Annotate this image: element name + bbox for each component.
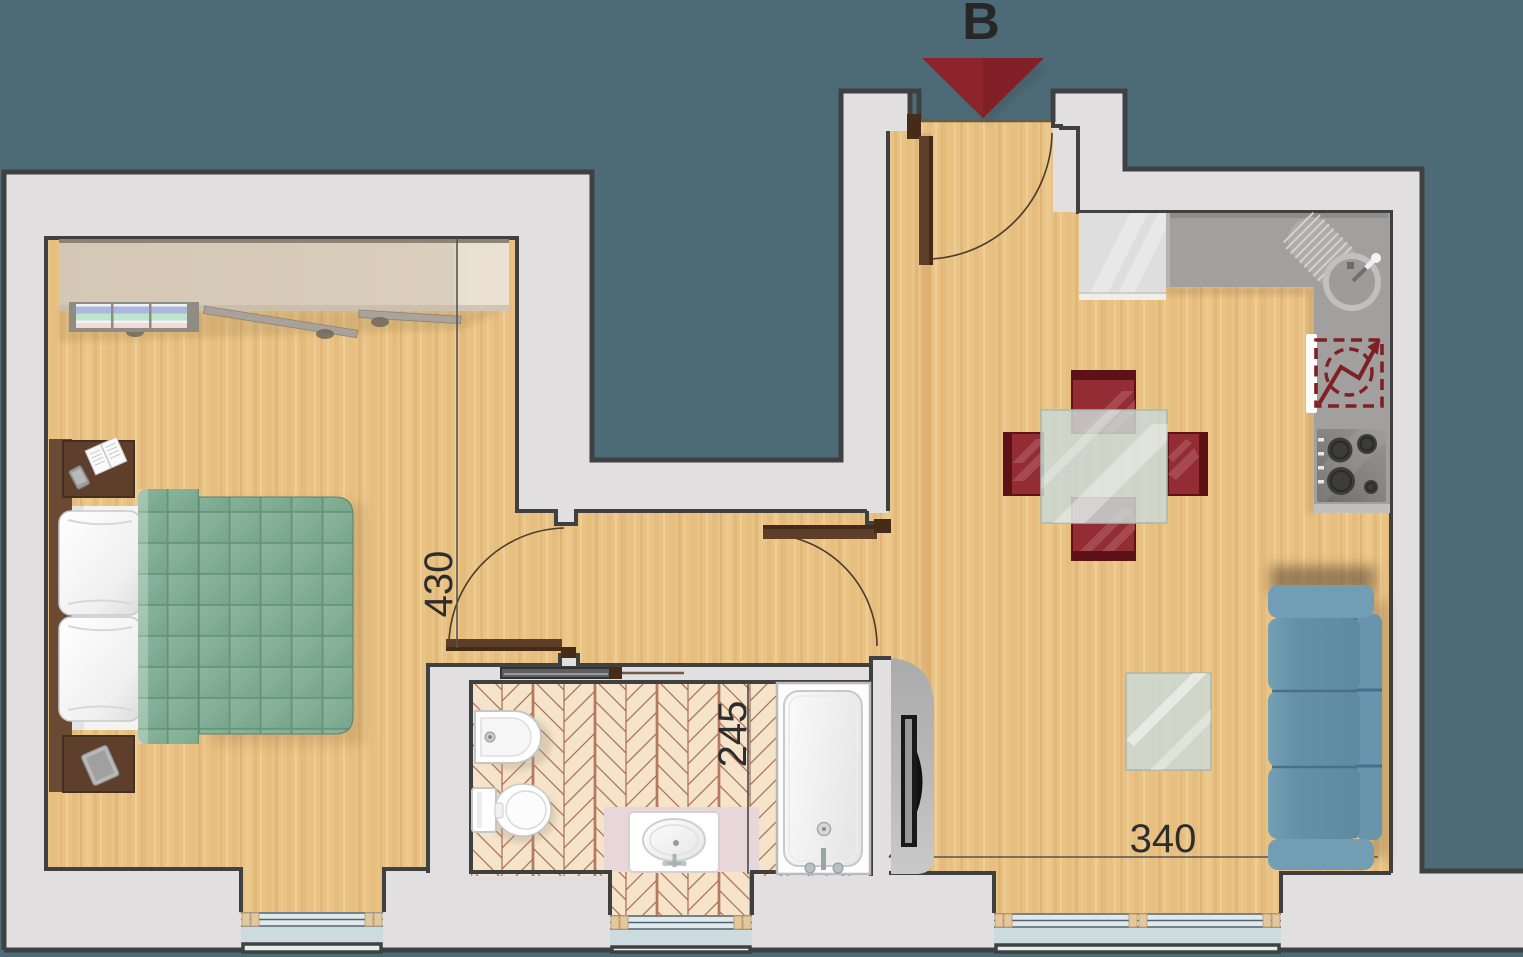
svg-text:B: B <box>962 0 1000 51</box>
svg-text:245: 245 <box>711 701 755 768</box>
svg-text:340: 340 <box>1130 817 1197 861</box>
svg-text:430: 430 <box>417 551 461 618</box>
